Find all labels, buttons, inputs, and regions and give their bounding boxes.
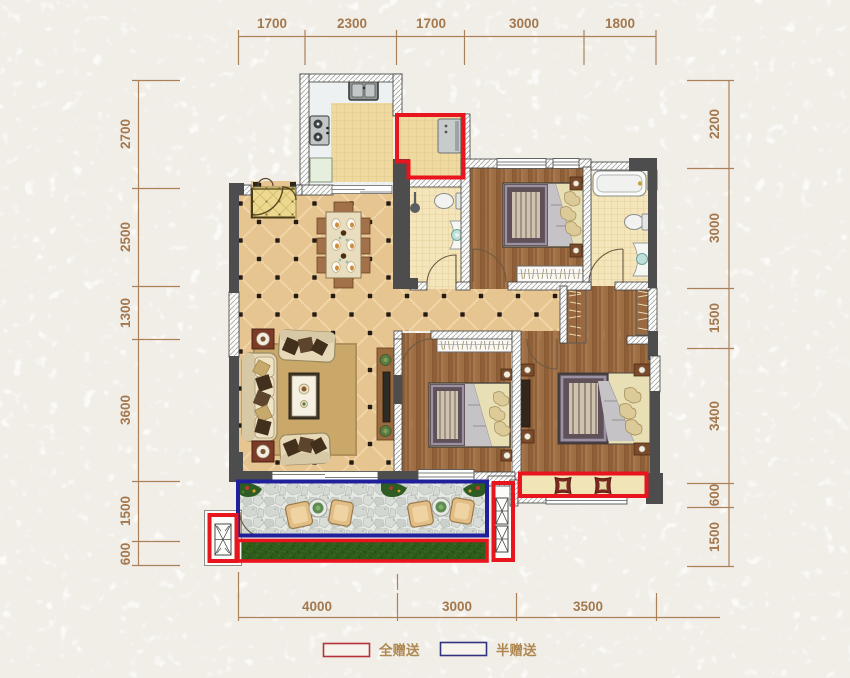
svg-text:2700: 2700 <box>118 119 133 149</box>
svg-text:2200: 2200 <box>707 109 722 139</box>
svg-text:3600: 3600 <box>118 395 133 425</box>
svg-text:1700: 1700 <box>257 16 287 31</box>
svg-text:2300: 2300 <box>337 16 367 31</box>
svg-text:1700: 1700 <box>416 16 446 31</box>
svg-text:600: 600 <box>118 543 133 566</box>
svg-text:3500: 3500 <box>573 599 603 614</box>
svg-text:3400: 3400 <box>707 401 722 431</box>
svg-text:半赠送: 半赠送 <box>496 642 537 658</box>
svg-text:1500: 1500 <box>707 303 722 333</box>
svg-text:4000: 4000 <box>302 599 332 614</box>
svg-text:1800: 1800 <box>605 16 635 31</box>
svg-text:2500: 2500 <box>118 222 133 252</box>
svg-text:1500: 1500 <box>118 496 133 526</box>
svg-text:3000: 3000 <box>707 213 722 243</box>
svg-text:3000: 3000 <box>442 599 472 614</box>
svg-text:1500: 1500 <box>707 522 722 552</box>
svg-text:1300: 1300 <box>118 298 133 328</box>
svg-text:600: 600 <box>707 484 722 507</box>
svg-text:3000: 3000 <box>509 16 539 31</box>
svg-text:全赠送: 全赠送 <box>378 642 420 658</box>
